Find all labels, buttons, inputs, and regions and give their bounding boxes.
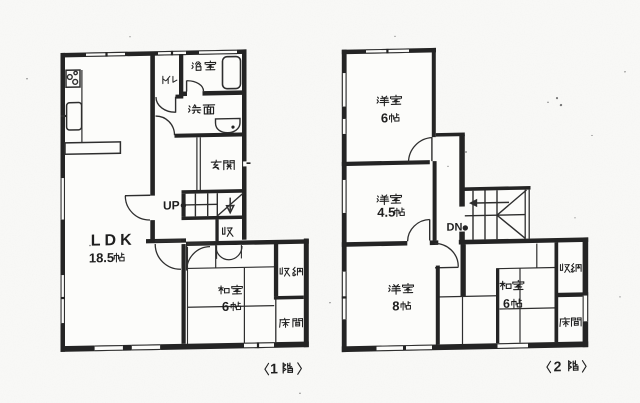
svg-text:6: 6	[503, 297, 510, 311]
svg-text:18.5: 18.5	[89, 250, 114, 265]
svg-text:DN: DN	[447, 221, 463, 233]
svg-text:6: 6	[381, 110, 388, 125]
svg-text:4.5: 4.5	[377, 205, 395, 220]
svg-text:1: 1	[270, 360, 278, 376]
svg-text:6: 6	[222, 299, 229, 314]
svg-text:UP: UP	[163, 198, 180, 212]
svg-text:2: 2	[554, 358, 562, 374]
svg-text:LDK: LDK	[91, 232, 136, 250]
svg-text:8: 8	[392, 298, 399, 313]
